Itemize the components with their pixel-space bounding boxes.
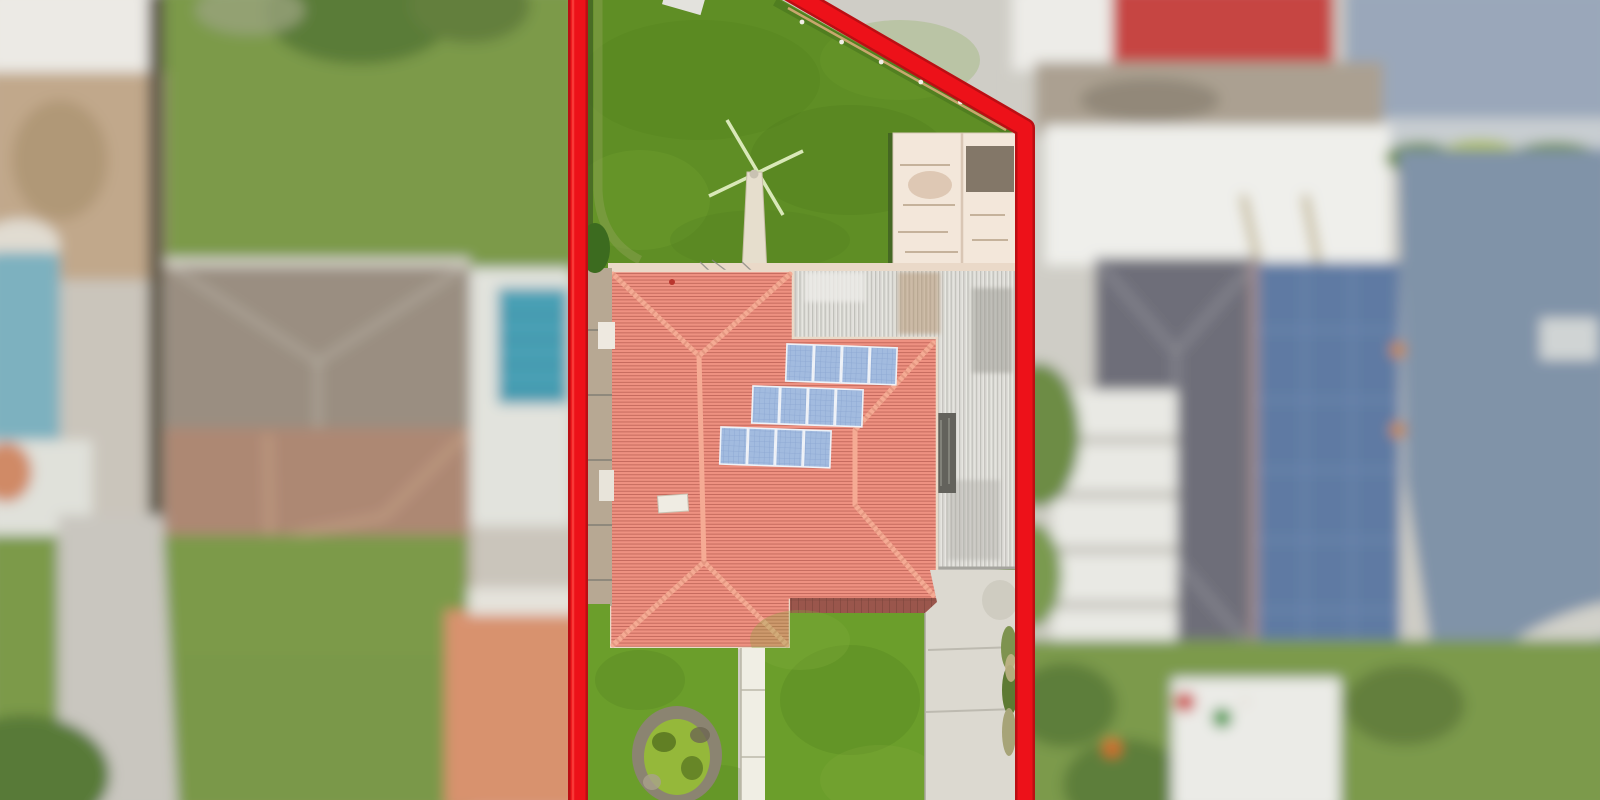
roof-red-dot [669, 279, 675, 285]
solar-row-1 [786, 344, 897, 385]
solar-row-2 [752, 386, 863, 427]
side-path-surface [586, 268, 612, 606]
side-path-ac-unit-2 [599, 470, 614, 501]
fence-post [839, 40, 844, 45]
right-roof-dot-1 [1390, 342, 1406, 358]
garden-bed [632, 706, 722, 800]
front-walkway [741, 648, 765, 800]
fence-post [879, 60, 884, 65]
garden-bush-shade-1 [652, 732, 676, 752]
solar-panel [775, 429, 803, 467]
fence-post [918, 80, 923, 85]
solar-panel [748, 428, 776, 466]
left-fence-line [148, 0, 164, 526]
solar-panel [841, 346, 869, 384]
left-white-roof [0, 0, 160, 84]
solar-row-3 [720, 427, 831, 468]
right-roof-dot-2 [1390, 422, 1406, 438]
solar-panel [780, 387, 808, 425]
side-path-ac-unit-1 [598, 322, 615, 349]
left-house-gutter-top [165, 258, 470, 266]
garden-rim-stone-2 [643, 774, 661, 790]
roof-vent-box [657, 494, 688, 513]
scene-svg [0, 0, 1600, 800]
neighbor-left-blurred [0, 0, 598, 800]
right-clutter-shade [1080, 78, 1220, 122]
garden-bush-shade-2 [681, 756, 703, 780]
solar-panel [752, 386, 780, 424]
right-solar-roof [1258, 262, 1400, 650]
turbine-hub [750, 170, 759, 179]
right-white-roof-top [1012, 0, 1122, 70]
right-tree-bottom-3 [1345, 665, 1465, 745]
left-dirt-shade [12, 100, 108, 220]
solar-panel [835, 389, 863, 427]
garden-shed [888, 133, 1017, 269]
solar-panel [720, 427, 748, 465]
turbine-pole [742, 172, 767, 273]
right-big-white-shed [1045, 125, 1390, 265]
solar-panel [786, 344, 814, 382]
featured-lot [570, 0, 1018, 800]
solar-panel [814, 345, 842, 383]
neighbor-right-blurred [996, 0, 1600, 800]
left-front-lawn-2 [160, 655, 472, 800]
roof-eave-dark-strip [790, 598, 937, 613]
left-pool [498, 288, 568, 404]
left-pool-2 [0, 252, 60, 457]
solar-panel [803, 430, 831, 468]
driveway-stain [982, 580, 1018, 620]
shed-rust-patch [966, 146, 1014, 192]
left-patio-salmon [445, 610, 580, 800]
left-patio-edge [468, 588, 578, 615]
carport-skylight [937, 413, 956, 493]
aerial-photo [0, 0, 1600, 800]
solar-panel [869, 347, 897, 385]
solar-panel [807, 388, 835, 426]
right-small-shed [1172, 678, 1340, 800]
fence-post [800, 20, 805, 25]
garden-rim-stone [690, 727, 710, 743]
walkway-surface [741, 648, 765, 800]
right-boat [1540, 318, 1598, 360]
shed-stain-blob [908, 171, 952, 199]
